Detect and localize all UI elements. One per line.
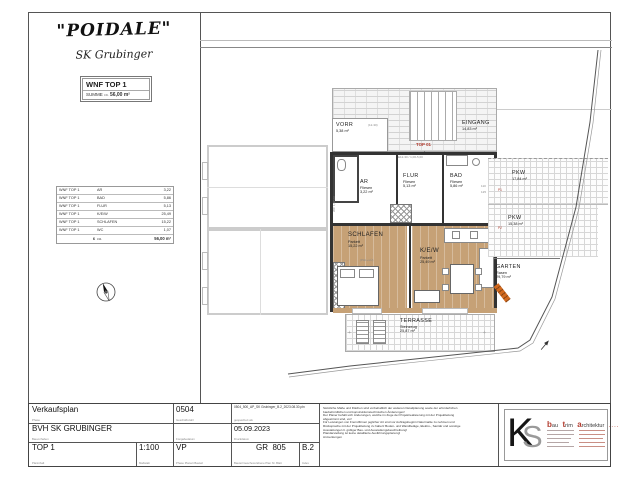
table-row: WNF TOP 1K/E/W25,49 bbox=[57, 211, 173, 219]
table-total-row: 6 ca. 56,00 m² bbox=[57, 235, 173, 243]
summe-label: SUMME bbox=[86, 92, 103, 97]
phase-value: VP bbox=[176, 443, 228, 452]
titleblock-divider bbox=[498, 404, 499, 466]
project-label: Bauvorhaben bbox=[32, 437, 49, 441]
architect-logo: K S bau trim architektur .... bbox=[504, 409, 608, 461]
cell-project: BVH SK GRUBINGER Bauvorhaben bbox=[29, 423, 173, 442]
index-value: B.2 bbox=[302, 443, 316, 452]
level-value: GR bbox=[256, 443, 268, 452]
unit-box-sum: SUMME ca. 56,00 m² bbox=[83, 91, 149, 99]
cell-scale: 1:100 Maßstab bbox=[136, 442, 173, 466]
row-area: 1,07 bbox=[143, 227, 173, 234]
row-area: 5,86 bbox=[143, 195, 173, 202]
table-row: WNF TOP 1BAD5,86 bbox=[57, 195, 173, 203]
row-area: 5,13 bbox=[143, 203, 173, 210]
row-area: 3,22 bbox=[143, 187, 173, 194]
brand-rest: rchitektur bbox=[582, 423, 605, 429]
cell-content: TOP 1 Planinhalt bbox=[29, 442, 136, 466]
scale-value: 1:100 bbox=[139, 443, 170, 452]
disclaimer-text: Sämtliche Maße und Flächen sind vorbehal… bbox=[319, 404, 498, 466]
total-ca: ca. bbox=[95, 235, 143, 243]
brand-rest: au bbox=[552, 423, 558, 429]
row-unit: WNF TOP 1 bbox=[57, 187, 97, 194]
plan-sheet: { "header": { "project_title": "\"POIDAL… bbox=[0, 0, 640, 480]
project-value: BVH SK GRUBINGER bbox=[32, 424, 170, 433]
row-unit: WNF TOP 1 bbox=[57, 195, 97, 202]
row-room: AR bbox=[97, 187, 143, 194]
cell-print-date: 05.09.2023 Druckdatum bbox=[231, 423, 319, 442]
logo-address-line bbox=[547, 438, 571, 439]
total-count: 6 bbox=[57, 235, 95, 243]
row-unit: WNF TOP 1 bbox=[57, 219, 97, 226]
row-unit: WNF TOP 1 bbox=[57, 227, 97, 234]
logo-contact-line bbox=[579, 446, 605, 447]
table-row: WNF TOP 1AR3,22 bbox=[57, 187, 173, 195]
logo-address-line bbox=[547, 446, 574, 447]
row-room: SCHLAFEN bbox=[97, 219, 143, 226]
row-room: K/E/W bbox=[97, 211, 143, 218]
level-plannr-values: GR 805 bbox=[234, 443, 296, 452]
logo-contact-line bbox=[579, 434, 605, 435]
disclaimer-line: Anmerkungen bbox=[323, 436, 494, 440]
cell-level-plannr: GR 805 Bauteil Geschoss Ebene Plan Nr. B… bbox=[231, 442, 299, 466]
total-value: 56,00 m² bbox=[143, 235, 173, 243]
logo-address-line bbox=[547, 442, 569, 443]
brand-suffix: .... bbox=[609, 423, 620, 429]
logo-address-line bbox=[547, 434, 574, 435]
summe-value: 56,00 m² bbox=[110, 92, 130, 98]
phase-label: Phase Planart Bauteil bbox=[176, 461, 203, 465]
cell-release-date: Freigabedatum bbox=[173, 423, 231, 442]
level-plannr-label: Bauteil Geschoss Ebene Plan Nr. Blatt bbox=[234, 461, 282, 465]
table-row: WNF TOP 1WC1,07 bbox=[57, 227, 173, 235]
brand-rest: rim bbox=[565, 423, 573, 429]
row-room: FLUR bbox=[97, 203, 143, 210]
content-label: Planinhalt bbox=[32, 461, 44, 465]
file-number-label: Geschäftszahl bbox=[176, 418, 194, 422]
logo-address-line bbox=[547, 430, 574, 431]
file-number-value: 0504 bbox=[176, 405, 228, 414]
index-label: Index bbox=[302, 461, 309, 465]
area-table: WNF TOP 1AR3,22 WNF TOP 1BAD5,86 WNF TOP… bbox=[56, 186, 174, 244]
release-date-label: Freigabedatum bbox=[176, 437, 195, 441]
cell-phase: VP Phase Planart Bauteil bbox=[173, 442, 231, 466]
title-block: Verkaufsplan Phase BVH SK GRUBINGER Bauv… bbox=[28, 403, 611, 467]
filename-value: 0504_500_AP_SK Grubinger_B.2_2023.08.30.… bbox=[234, 405, 316, 409]
row-area: 25,49 bbox=[143, 211, 173, 218]
unit-summary-box: WNF TOP 1 SUMME ca. 56,00 m² bbox=[80, 76, 152, 102]
floor-plan: VORR 5,38 m² (12-30) EINGANG 14,83 m² TO… bbox=[200, 12, 612, 403]
cell-index: B.2 Index bbox=[299, 442, 319, 466]
logo-s-mark: S bbox=[522, 421, 543, 452]
row-area: 15,22 bbox=[143, 219, 173, 226]
cell-filename: 0504_500_AP_SK Grubinger_B.2_2023.08.30.… bbox=[231, 404, 319, 423]
logo-contact-line bbox=[579, 438, 603, 439]
scale-label: Maßstab bbox=[139, 461, 150, 465]
plan-type-value: Verkaufsplan bbox=[32, 405, 170, 414]
plan-north-mark-icon bbox=[538, 338, 552, 352]
logo-contact-line bbox=[579, 430, 605, 431]
cell-file-number: 0504 Geschäftszahl bbox=[173, 404, 231, 423]
logo-contact-line bbox=[579, 442, 605, 443]
row-unit: WNF TOP 1 bbox=[57, 203, 97, 210]
plannr-value: 805 bbox=[272, 443, 285, 452]
north-compass-icon bbox=[94, 280, 118, 304]
filename-label: gespeichert als bbox=[234, 418, 253, 422]
unit-box-title: WNF TOP 1 bbox=[83, 79, 149, 91]
table-row: WNF TOP 1SCHLAFEN15,22 bbox=[57, 219, 173, 227]
row-unit: WNF TOP 1 bbox=[57, 211, 97, 218]
ca-label: ca. bbox=[104, 93, 109, 97]
table-row: WNF TOP 1FLUR5,13 bbox=[57, 203, 173, 211]
content-value: TOP 1 bbox=[32, 443, 133, 452]
row-room: WC bbox=[97, 227, 143, 234]
row-room: BAD bbox=[97, 195, 143, 202]
print-date-value: 05.09.2023 bbox=[234, 424, 316, 433]
print-date-label: Druckdatum bbox=[234, 437, 249, 441]
plan-type-label: Phase bbox=[32, 418, 40, 422]
cell-plan-type: Verkaufsplan Phase bbox=[29, 404, 173, 423]
